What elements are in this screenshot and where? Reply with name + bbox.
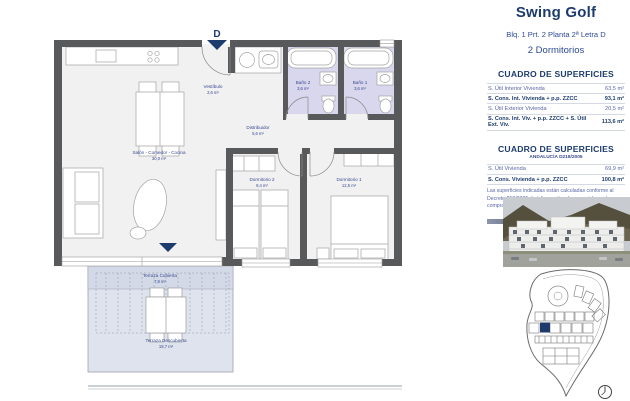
room-label-salon: Salón - Comedor - Cocina — [132, 150, 186, 155]
room-label-terraza-cubierta: Terraza Cubierta — [143, 273, 177, 278]
property-line — [88, 386, 402, 389]
buildings — [509, 217, 624, 253]
surface-row: S. Cons. Int. Viv. + p.p. ZZCC + S. Útil… — [487, 115, 625, 131]
svg-text:7,8 m²: 7,8 m² — [154, 279, 166, 284]
svg-text:18,7 m²: 18,7 m² — [159, 344, 174, 349]
room-label-dormitorio2: Dormitorio 2 — [249, 177, 274, 182]
floor-plan: D Vestíbulo 2,6 m² Salón - Comedor - Coc… — [0, 0, 460, 401]
surface-row: S. Cons. Vivienda + p.p. ZZCC 100,8 m² — [487, 175, 625, 185]
unit-reference: Blq. 1 Prt. 2 Planta 2ª Letra D — [487, 30, 625, 39]
site-plan — [513, 266, 617, 401]
svg-text:9,4 m²: 9,4 m² — [256, 183, 268, 188]
svg-text:12,5 m²: 12,5 m² — [342, 183, 357, 188]
building-render — [503, 197, 630, 267]
room-label-distribuidor: Distribuidor — [246, 125, 270, 130]
dining-table — [136, 82, 184, 156]
surfaces-table2-title: CUADRO DE SUPERFICIES — [487, 144, 625, 154]
surfaces-table2-subtitle: ANDALUCÍA D218/2005 — [487, 155, 625, 160]
surface-row: S. Útil Vivienda 69,9 m² — [487, 165, 625, 175]
room-label-bano1: Baño 1 — [353, 80, 368, 85]
svg-text:30,0 m²: 30,0 m² — [152, 156, 167, 161]
kitchen-counter — [66, 47, 178, 65]
sideboard — [216, 170, 226, 240]
room-label-vestibulo: Vestíbulo — [204, 84, 223, 89]
bedroom-count: 2 Dormitorios — [487, 45, 625, 56]
surface-row: S. Cons. Int. Vivienda + p.p. ZZCC 93,1 … — [487, 94, 625, 104]
surfaces-table: S. Útil Interior Vivienda 63,5 m² S. Con… — [487, 83, 625, 131]
surface-row: S. Útil Exterior Vivienda 20,5 m² — [487, 104, 625, 114]
compass-icon — [599, 386, 612, 399]
unit-letter: D — [213, 29, 220, 40]
info-panel: Swing Golf Blq. 1 Prt. 2 Planta 2ª Letra… — [487, 4, 625, 224]
svg-text:3,6 m²: 3,6 m² — [297, 86, 309, 91]
room-label-terraza-descubierta: Terraza Descubierta — [145, 338, 187, 343]
sofa — [63, 168, 103, 238]
room-label-bano2: Baño 2 — [296, 80, 311, 85]
surface-row: S. Útil Interior Vivienda 63,5 m² — [487, 84, 625, 94]
surfaces-table2: S. Útil Vivienda 69,9 m² S. Cons. Vivien… — [487, 164, 625, 185]
svg-text:3,6 m²: 3,6 m² — [354, 86, 366, 91]
floorplan-sheet: D Vestíbulo 2,6 m² Salón - Comedor - Coc… — [0, 0, 630, 401]
svg-text:5,6 m²: 5,6 m² — [252, 131, 264, 136]
unit-location-marker — [540, 323, 550, 333]
svg-text:2,6 m²: 2,6 m² — [207, 90, 219, 95]
surfaces-table-title: CUADRO DE SUPERFICIES — [487, 69, 625, 79]
project-title: Swing Golf — [487, 4, 625, 21]
room-label-dormitorio1: Dormitorio 1 — [336, 177, 361, 182]
